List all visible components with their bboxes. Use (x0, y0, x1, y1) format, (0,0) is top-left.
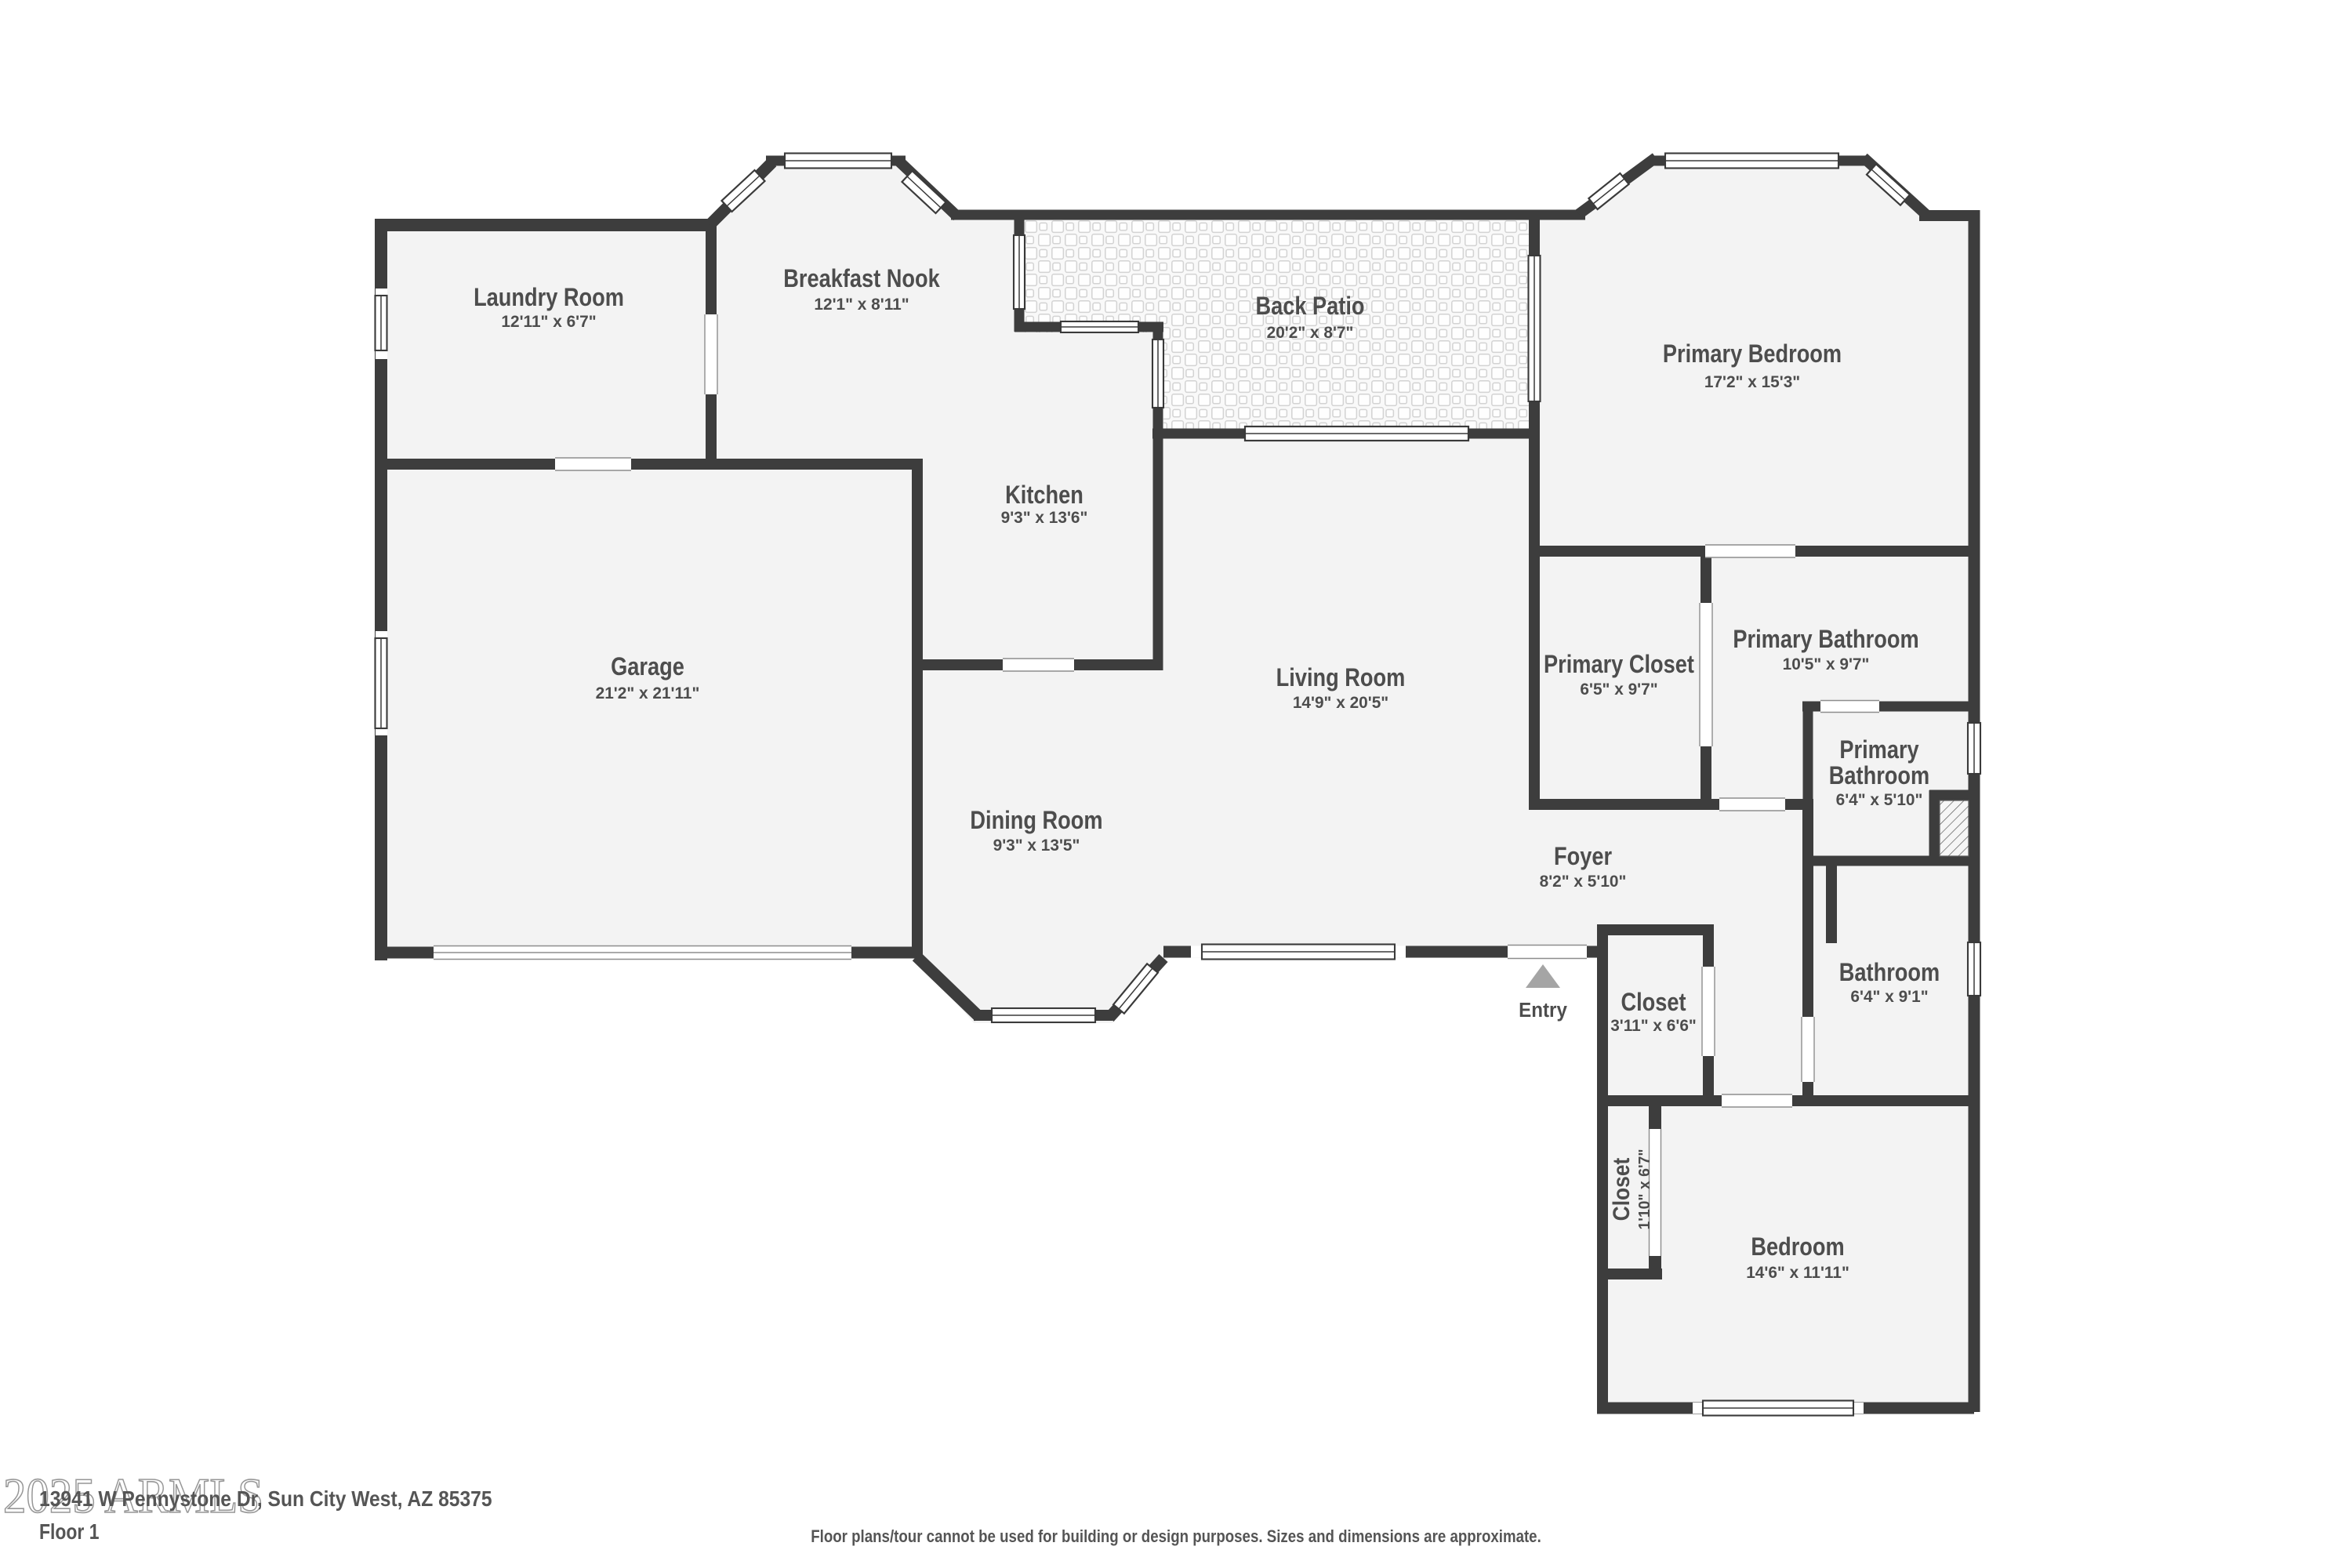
svg-text:Bathroom: Bathroom (1829, 762, 1929, 790)
svg-text:17'2" x 15'3": 17'2" x 15'3" (1704, 373, 1800, 391)
svg-text:Primary Closet: Primary Closet (1544, 651, 1694, 679)
svg-text:Bedroom: Bedroom (1751, 1233, 1844, 1261)
svg-text:Primary Bathroom: Primary Bathroom (1733, 626, 1918, 654)
svg-text:14'9" x 20'5": 14'9" x 20'5" (1293, 694, 1388, 712)
svg-text:9'3" x 13'6": 9'3" x 13'6" (1001, 509, 1088, 527)
svg-text:Closet: Closet (1607, 1157, 1634, 1221)
svg-text:6'4" x 9'1": 6'4" x 9'1" (1850, 988, 1928, 1006)
svg-text:14'6" x 11'11": 14'6" x 11'11" (1746, 1264, 1849, 1282)
svg-text:Back Patio: Back Patio (1255, 292, 1364, 321)
svg-text:9'3" x 13'5": 9'3" x 13'5" (993, 837, 1080, 855)
svg-text:Garage: Garage (611, 653, 684, 681)
svg-text:Foyer: Foyer (1554, 843, 1612, 871)
svg-text:12'11" x 6'7": 12'11" x 6'7" (501, 313, 596, 331)
svg-text:3'11" x 6'6": 3'11" x 6'6" (1610, 1017, 1697, 1035)
svg-text:6'4" x 5'10": 6'4" x 5'10" (1836, 791, 1923, 809)
svg-text:1'10" x 6'7": 1'10" x 6'7" (1636, 1149, 1653, 1229)
svg-text:10'5" x 9'7": 10'5" x 9'7" (1783, 655, 1870, 673)
svg-text:Dining Room: Dining Room (970, 807, 1102, 835)
svg-text:6'5" x 9'7": 6'5" x 9'7" (1580, 681, 1657, 699)
svg-text:13941 W Pennystone Dr, Sun Cit: 13941 W Pennystone Dr, Sun City West, AZ… (39, 1486, 492, 1512)
svg-text:Kitchen: Kitchen (1005, 481, 1083, 510)
svg-text:Entry: Entry (1519, 999, 1567, 1022)
svg-text:12'1" x 8'11": 12'1" x 8'11" (814, 296, 909, 314)
svg-text:Primary: Primary (1839, 736, 1919, 764)
svg-text:21'2" x 21'11": 21'2" x 21'11" (596, 684, 700, 702)
svg-text:Laundry Room: Laundry Room (474, 284, 624, 312)
svg-text:Primary Bedroom: Primary Bedroom (1663, 340, 1842, 368)
svg-text:20'2" x 8'7": 20'2" x 8'7" (1267, 324, 1354, 342)
svg-text:Living Room: Living Room (1276, 664, 1406, 692)
svg-text:Bathroom: Bathroom (1839, 959, 1940, 987)
svg-text:Closet: Closet (1621, 989, 1686, 1017)
svg-text:Breakfast Nook: Breakfast Nook (783, 265, 940, 293)
svg-text:Floor plans/tour cannot be use: Floor plans/tour cannot be used for buil… (811, 1528, 1541, 1547)
svg-text:Floor 1: Floor 1 (39, 1520, 100, 1544)
svg-text:8'2" x 5'10": 8'2" x 5'10" (1540, 873, 1627, 891)
